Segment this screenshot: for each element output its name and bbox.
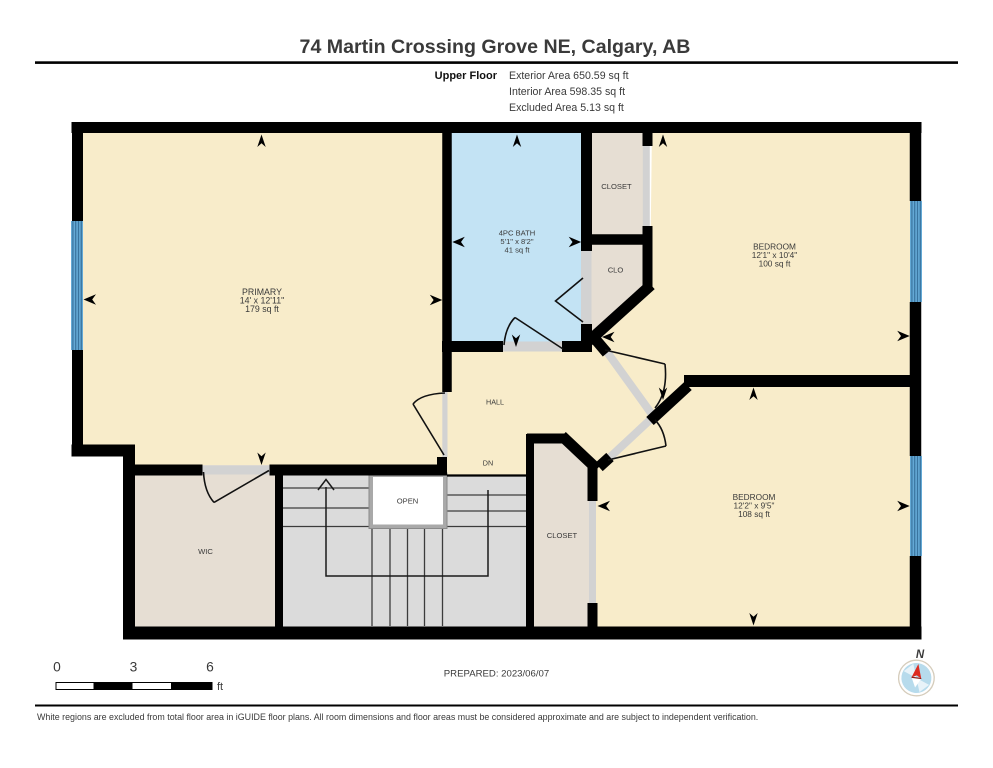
- svg-text:ft: ft: [217, 681, 223, 693]
- svg-text:0: 0: [53, 660, 61, 675]
- svg-text:CLO: CLO: [608, 266, 624, 275]
- svg-text:CLOSET: CLOSET: [547, 531, 578, 540]
- svg-text:74 Martin Crossing Grove NE, C: 74 Martin Crossing Grove NE, Calgary, AB: [300, 36, 691, 58]
- svg-text:Interior Area 598.35 sq ft: Interior Area 598.35 sq ft: [509, 86, 625, 98]
- svg-text:WIC: WIC: [198, 547, 213, 556]
- svg-text:DN: DN: [483, 459, 493, 468]
- svg-text:6: 6: [206, 660, 214, 675]
- svg-text:HALL: HALL: [486, 398, 504, 407]
- svg-text:Upper Floor: Upper Floor: [435, 70, 498, 82]
- svg-text:OPEN: OPEN: [397, 497, 419, 506]
- svg-text:CLOSET: CLOSET: [601, 182, 632, 191]
- svg-text:108 sq ft: 108 sq ft: [738, 509, 771, 519]
- svg-text:3: 3: [130, 660, 138, 675]
- svg-text:179 sq ft: 179 sq ft: [245, 304, 279, 314]
- svg-text:N: N: [916, 649, 925, 661]
- svg-text:100 sq ft: 100 sq ft: [759, 258, 792, 268]
- svg-text:PREPARED: 2023/06/07: PREPARED: 2023/06/07: [444, 669, 549, 680]
- svg-text:Excluded Area 5.13 sq ft: Excluded Area 5.13 sq ft: [509, 102, 624, 114]
- svg-text:White regions are excluded fro: White regions are excluded from total fl…: [37, 712, 758, 722]
- svg-text:41 sq ft: 41 sq ft: [505, 246, 531, 255]
- svg-text:Exterior Area 650.59 sq ft: Exterior Area 650.59 sq ft: [509, 70, 629, 82]
